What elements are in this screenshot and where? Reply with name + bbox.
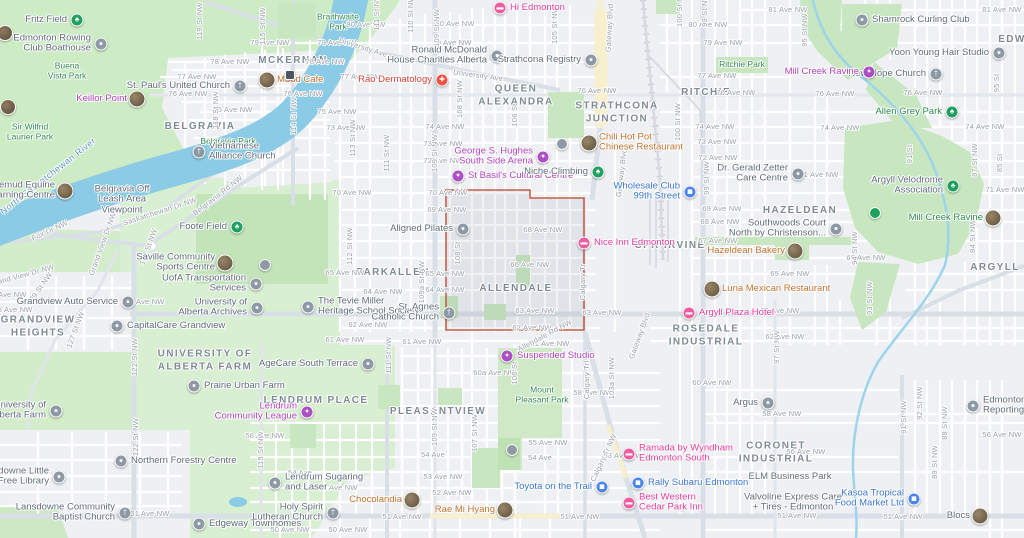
photo-icon[interactable]	[972, 508, 989, 525]
street-name-label: 110 St NW	[407, 0, 415, 33]
star-icon[interactable]: ✦	[501, 350, 514, 363]
street-name-label: 88 St NW	[941, 406, 949, 440]
street-name-label: 78 Ave NW	[210, 58, 249, 66]
poi-label[interactable]: Argyll Plaza Hotel	[699, 308, 774, 318]
dot-icon[interactable]: ●	[250, 278, 263, 291]
poi-label[interactable]: Mill Creek Ravine	[785, 67, 859, 77]
poi-label[interactable]: George S. Hughes South Side Arena	[454, 147, 533, 168]
poi-label[interactable]: Niche Climbing	[524, 167, 588, 177]
tree-icon[interactable]: ♣	[71, 14, 84, 27]
poi-label[interactable]: Mill Creek Ravine	[909, 213, 983, 223]
street-name-label: 109 St NW	[431, 408, 439, 446]
dot-icon[interactable]: ●	[792, 168, 805, 181]
street-name-label: 61 Ave NW	[325, 336, 364, 344]
neighborhood-label: GRANDVIEW HEIGHTS	[1, 315, 76, 340]
street-name-label: 71 Ave NW	[985, 186, 1024, 194]
poi-label[interactable]: Northern Forestry Centre	[131, 456, 237, 466]
neighborhood-label: EDWA	[998, 34, 1024, 47]
star-icon[interactable]: ✦	[301, 406, 314, 419]
poi-label[interactable]: Chocolandia	[349, 495, 402, 505]
poi-label[interactable]: Best Western Cedar Park Inn	[639, 493, 703, 514]
dot-icon[interactable]: ●	[53, 471, 66, 484]
poi-label[interactable]: Lendrum Sugaring and Laser	[285, 473, 363, 494]
poi-label[interactable]: St. Paul's United Church	[127, 81, 230, 91]
poi-label[interactable]: Keillor Point	[76, 94, 127, 104]
street-name-label: 61 Ave NW	[402, 338, 441, 346]
neighborhood-label: ALLENDALE	[479, 283, 552, 296]
shopping-icon[interactable]: ◼	[908, 493, 921, 506]
map-labels-layer: BELGRAVIAMCKERNANQUEEN ALEXANDRASTRATHCO…	[0, 0, 1024, 538]
bed-icon[interactable]: ▬	[623, 448, 636, 461]
generic-marker-icon[interactable]	[556, 138, 568, 150]
poi-label[interactable]: Vietnamese Alliance Church	[209, 142, 276, 163]
poi-label[interactable]: UofA Transportation Services	[162, 274, 246, 295]
poi-label[interactable]: New Hope Church	[848, 69, 926, 79]
street-name-label: 111 St NW	[383, 135, 391, 172]
tree-icon[interactable]: ♣	[947, 180, 960, 193]
poi-label[interactable]: Yoon Young Hair Studio	[889, 48, 989, 58]
dot-icon[interactable]: ●	[967, 400, 980, 413]
street-name-label: 77 Ave NW	[697, 72, 736, 80]
street-name-label: 76 Ave NW	[815, 90, 854, 98]
dot-icon[interactable]: ●	[457, 223, 470, 236]
dot-icon[interactable]: ●	[111, 320, 124, 333]
street-name-label: 58 Ave NW	[762, 410, 801, 418]
street-name-label: 103a St NW	[608, 357, 616, 399]
church-cross-icon[interactable]: †	[443, 307, 456, 320]
poi-label[interactable]: Edmonton Collision Reporting Centre	[983, 396, 1024, 417]
water-name-label: North Saskatchewan River	[0, 136, 98, 217]
poi-label[interactable]: ELM Business Park	[749, 472, 832, 482]
poi-label[interactable]: Mood Cafe	[277, 75, 323, 85]
poi-label[interactable]: Dr. Gerald Zetter Care Centre	[717, 164, 788, 185]
street-name-label: 89 St NW	[931, 445, 939, 479]
street-name-label: 95 St NW	[801, 13, 809, 47]
bed-icon[interactable]: ▬	[494, 2, 507, 15]
park-name-label: Mount Pleasant Park	[516, 385, 569, 404]
church-cross-icon[interactable]: †	[234, 80, 247, 93]
street-name-label: University Ave	[338, 37, 388, 60]
street-name-label: 122 St NW	[132, 418, 140, 456]
dot-icon[interactable]: ●	[188, 380, 201, 393]
shopping-icon[interactable]: ◼	[596, 481, 609, 494]
street-name-label: 79 Ave NW	[250, 39, 289, 47]
street-name-label: 76 Ave NW	[716, 89, 755, 97]
street-name-label: 107 St NW	[471, 414, 479, 452]
poi-label[interactable]: Rao Dermatology	[358, 75, 432, 85]
photo-icon[interactable]	[787, 243, 804, 260]
dot-icon[interactable]: ●	[585, 54, 598, 67]
dot-icon[interactable]: ●	[251, 302, 264, 315]
poi-label[interactable]: Lendrum Community League	[215, 402, 297, 423]
street-name-label: 85 St	[996, 154, 1004, 173]
street-name-label: 51 Ave NW	[130, 510, 169, 518]
street-name-label: 69 Ave NW	[427, 206, 466, 214]
poi-label[interactable]: Strathcona Registry	[498, 55, 581, 65]
photo-marker-icon[interactable]	[0, 25, 13, 41]
street-name-label: 87 St NW	[971, 143, 979, 177]
tree-icon[interactable]: ♣	[231, 221, 244, 234]
street-name-label: 84 St NW	[969, 219, 977, 253]
photo-icon[interactable]	[129, 91, 146, 108]
street-name-label: 112 St NW	[346, 227, 354, 265]
map-canvas[interactable]: BELGRAVIAMCKERNANQUEEN ALEXANDRASTRATHCO…	[0, 0, 1024, 538]
poi-label[interactable]: Ronald McDonald House Charities Alberta	[387, 46, 487, 67]
photo-icon[interactable]	[497, 502, 514, 519]
neighborhood-label: ARGYLL	[970, 262, 1020, 275]
poi-label[interactable]: Rally Subaru Edmonton	[648, 478, 748, 488]
street-name-label: 65 Ave NW	[770, 270, 809, 278]
poi-label[interactable]: Aligned Pilates	[390, 224, 453, 234]
poi-label[interactable]: Chili Hot Pot Chinese Restaurant	[599, 133, 683, 154]
street-name-label: 69 Ave NW	[702, 205, 741, 213]
street-name-label: 108 St NW	[456, 80, 464, 118]
street-name-label: 51 Ave NW	[883, 513, 922, 521]
photo-icon[interactable]	[259, 72, 276, 89]
poi-label[interactable]: Argus	[733, 398, 758, 408]
generic-marker-icon[interactable]	[259, 259, 271, 271]
bed-icon[interactable]: ▬	[623, 497, 636, 510]
street-name-label: 97 St NW	[773, 330, 781, 364]
street-name-label: 54 Ave	[421, 451, 445, 459]
street-name-label: 91 St NW	[900, 400, 908, 434]
street-name-label: 100 St NW	[676, 0, 684, 27]
bed-icon[interactable]: ▬	[683, 307, 696, 320]
street-name-label: 118 St NW	[212, 91, 220, 129]
poi-label[interactable]: Argyll Velodrome Association	[871, 176, 943, 197]
street-name-label: 99 St NW	[703, 161, 711, 195]
street-name-label: 68 Ave NW	[523, 226, 562, 234]
street-name-label: 115 St NW	[259, 7, 267, 45]
poi-label[interactable]: Edmonton Rowing Club Boathouse	[13, 34, 91, 55]
poi-label[interactable]: Rae Mi Hyang	[435, 505, 495, 515]
street-name-label: 74 Ave NW	[965, 123, 1004, 131]
poi-label[interactable]: Wholesale Club 99th Street	[613, 182, 680, 203]
church-cross-icon[interactable]: †	[193, 146, 206, 159]
street-name-label: 74 Ave NW	[695, 123, 734, 131]
street-name-label: 92 St NW	[916, 386, 924, 420]
street-name-label: 64 Ave NW	[425, 286, 464, 294]
poi-label[interactable]: Blocs	[947, 511, 970, 521]
street-name-label: 106 St	[511, 104, 519, 127]
poi-label[interactable]: Prairie Urban Farm	[204, 381, 285, 391]
street-name-label: 74 Ave NW	[820, 124, 859, 132]
neighborhood-label: HAZELDEAN	[763, 205, 837, 218]
poi-label[interactable]: Whitemud Equine Learning Centre	[0, 181, 55, 202]
street-name-label: 56 Ave NW	[786, 448, 825, 456]
generic-marker-icon[interactable]	[506, 444, 518, 456]
street-name-label: Calgary Tr	[579, 264, 587, 301]
poi-label[interactable]: Fritz Field	[25, 15, 67, 25]
dot-icon[interactable]: ●	[856, 14, 869, 27]
poi-label[interactable]: St. Agnes Catholic Church	[371, 303, 439, 324]
street-name-label: 119 St NW	[196, 2, 204, 40]
street-name-label: 91 St	[906, 145, 914, 164]
street-name-label: 54 Ave	[528, 454, 552, 462]
dot-icon[interactable]: ●	[193, 518, 206, 531]
photo-icon[interactable]	[581, 135, 598, 152]
street-name-label: 63 Ave NW	[515, 307, 554, 315]
street-name-label: 111 St NW	[373, 0, 381, 30]
street-name-label: 73 Ave NW	[326, 124, 365, 132]
shopping-icon[interactable]: ◼	[684, 186, 697, 199]
street-name-label: 80 Ave NW	[435, 20, 474, 28]
poi-label[interactable]: Holy Spirit Lutheran Church	[252, 503, 323, 524]
photo-icon[interactable]	[57, 183, 74, 200]
street-name-label: 109 St NW	[433, 9, 441, 47]
street-name-label: 63 Ave NW	[582, 309, 621, 317]
street-name-label: 70 Ave NW	[428, 189, 467, 197]
poi-label[interactable]: University of Alberta Farm	[0, 401, 46, 422]
neighborhood-label: STRATHCONA JUNCTION	[575, 101, 658, 126]
street-name-label: 65 Ave NW	[325, 269, 364, 277]
street-name-label: 73 Ave NW	[697, 138, 736, 146]
poi-label[interactable]: CapitalCare Grandview	[127, 321, 225, 331]
poi-label[interactable]: Suspended Studio	[517, 351, 595, 361]
photo-icon[interactable]	[704, 281, 721, 298]
poi-label[interactable]: Toyota on the Trail	[514, 482, 592, 492]
poi-label[interactable]: AgeCare South Terrace	[259, 359, 358, 369]
poi-label[interactable]: Valvoline Express Care + Tires - Edmonto…	[744, 493, 842, 514]
street-name-label: 78 Ave NW	[305, 58, 344, 66]
neighborhood-label: BELGRAVIA	[165, 121, 236, 134]
street-name-label: Grand View Dr NW	[88, 211, 119, 277]
street-name-label: Belgravia Rd NW	[192, 174, 245, 218]
poi-label[interactable]: Nice Inn Edmonton	[594, 238, 675, 248]
street-name-label: 65 Ave NW	[425, 270, 464, 278]
poi-label[interactable]: Hi Edmonton	[510, 3, 565, 13]
street-name-label: 53 Ave NW	[423, 473, 462, 481]
street-name-label: 75 Ave NW	[317, 108, 356, 116]
photo-icon[interactable]	[217, 255, 234, 272]
poi-label[interactable]: Southwoods Court North by Christenson...	[729, 219, 826, 240]
street-name-label: 52 Ave NW	[432, 489, 471, 497]
church-cross-icon[interactable]: †	[930, 68, 943, 81]
street-name-label: Fox Dr NW	[31, 219, 70, 243]
poi-label[interactable]: Allen Grey Park	[875, 107, 942, 117]
street-name-label: 94 St NW	[851, 231, 859, 265]
street-name-label: 60 Ave NW	[692, 379, 731, 387]
star-icon[interactable]: ✦	[452, 170, 465, 183]
street-name-label: 122 St NW	[131, 338, 139, 376]
tree-icon[interactable]: ♣	[592, 166, 605, 179]
poi-label[interactable]: Belgravia Off Leash Area Viewpoint	[95, 184, 150, 215]
street-name-label: 51 Ave NW	[560, 513, 599, 521]
street-name-label: 109 St NW	[431, 134, 439, 172]
street-name-label: 99 St NW	[701, 0, 709, 27]
street-name-label: 111 St NW	[385, 337, 393, 374]
dot-icon[interactable]: ●	[302, 301, 315, 314]
street-name-label: 76 Ave NW	[903, 89, 942, 97]
street-name-label: 95 St	[993, 74, 1001, 93]
neighborhood-label: ROSEDALE INDUSTRIAL	[669, 324, 744, 349]
street-name-label: 115 St NW	[257, 431, 265, 469]
poi-label[interactable]: University of Alberta Archives	[178, 298, 247, 319]
bed-icon[interactable]: ▬	[578, 237, 591, 250]
street-name-label: 106 St	[511, 362, 519, 385]
dot-icon[interactable]: ●	[830, 223, 843, 236]
street-name-label: 113 St NW	[349, 119, 357, 157]
street-name-label: 114 St NW	[290, 97, 298, 135]
street-name-label: 56 Ave NW	[982, 431, 1021, 439]
street-name-label: 74 Ave NW	[425, 123, 464, 131]
street-name-label: 51 Ave NW	[382, 513, 421, 521]
street-name-label: 66 Ave NW	[510, 261, 549, 269]
neighborhood-label: UNIVERSITY OF ALBERTA FARM	[158, 349, 253, 374]
poi-label[interactable]: Lansdowne Little Free Library	[0, 467, 49, 488]
street-name-label: 93 St NW	[866, 281, 874, 315]
photo-icon[interactable]	[985, 210, 1002, 227]
street-name-label: 76 Ave NW	[577, 87, 616, 95]
church-cross-icon[interactable]: †	[119, 507, 132, 520]
poi-label[interactable]: Kasoa Tropical Food Market Ltd	[835, 489, 904, 510]
street-name-label: 81 Ave NW	[982, 6, 1021, 14]
star-icon[interactable]: ✦	[537, 151, 550, 164]
park-name-label: Ritchie Park	[719, 60, 765, 70]
dot-icon[interactable]: ●	[95, 38, 108, 51]
dot-icon[interactable]: ●	[762, 397, 775, 410]
street-name-label: Calgary Trl	[583, 361, 591, 399]
dot-icon[interactable]: ●	[269, 477, 282, 490]
medical-cross-icon[interactable]: ✚	[436, 74, 449, 87]
street-name-label: 70 Ave NW	[332, 189, 371, 197]
street-name-label: 55 Ave NW	[528, 439, 567, 447]
park-marker-icon[interactable]	[869, 207, 881, 219]
poi-label[interactable]: Ramada by Wyndham Edmonton South	[639, 444, 733, 465]
dot-icon[interactable]: ●	[362, 358, 375, 371]
dot-icon[interactable]: ●	[50, 405, 63, 418]
photo-icon[interactable]	[404, 492, 421, 509]
street-name-label: 108 St	[454, 242, 462, 265]
park-name-label: Sir Wilfrid Laurier Park	[7, 122, 53, 141]
poi-label[interactable]: Luna Mexican Restaurant	[722, 284, 830, 294]
street-name-label: 79 Ave NW	[703, 39, 742, 47]
street-name-label: Gateway Blvd	[605, 3, 616, 52]
photo-marker-icon[interactable]	[0, 99, 16, 115]
star-icon[interactable]: ✦	[863, 66, 876, 79]
church-cross-icon[interactable]: †	[327, 507, 340, 520]
poi-label[interactable]: Grandview Auto Service	[17, 297, 118, 307]
dot-icon[interactable]: ●	[115, 455, 128, 468]
dot-icon[interactable]: ●	[122, 296, 135, 309]
poi-label[interactable]: Foote Field	[179, 222, 227, 232]
shopping-icon[interactable]: ◼	[632, 477, 645, 490]
street-name-label: 71 Ave NW	[799, 171, 838, 179]
poi-label[interactable]: Hazeldean Bakery	[707, 246, 785, 256]
dot-icon[interactable]: ●	[993, 47, 1006, 60]
street-name-label: Gateway Blvd	[628, 312, 653, 361]
poi-label[interactable]: Shamrock Curling Club	[872, 15, 970, 25]
poi-label[interactable]: Saville Community Sports Centre	[136, 253, 215, 274]
poi-label[interactable]: Lansdowne Community Baptist Church	[16, 503, 115, 524]
street-name-label: 50 Ave NW	[328, 526, 367, 534]
transit-station-icon[interactable]	[285, 70, 295, 80]
tree-icon[interactable]: ♣	[946, 106, 959, 119]
park-name-label: Buena Vista Park	[48, 61, 87, 80]
